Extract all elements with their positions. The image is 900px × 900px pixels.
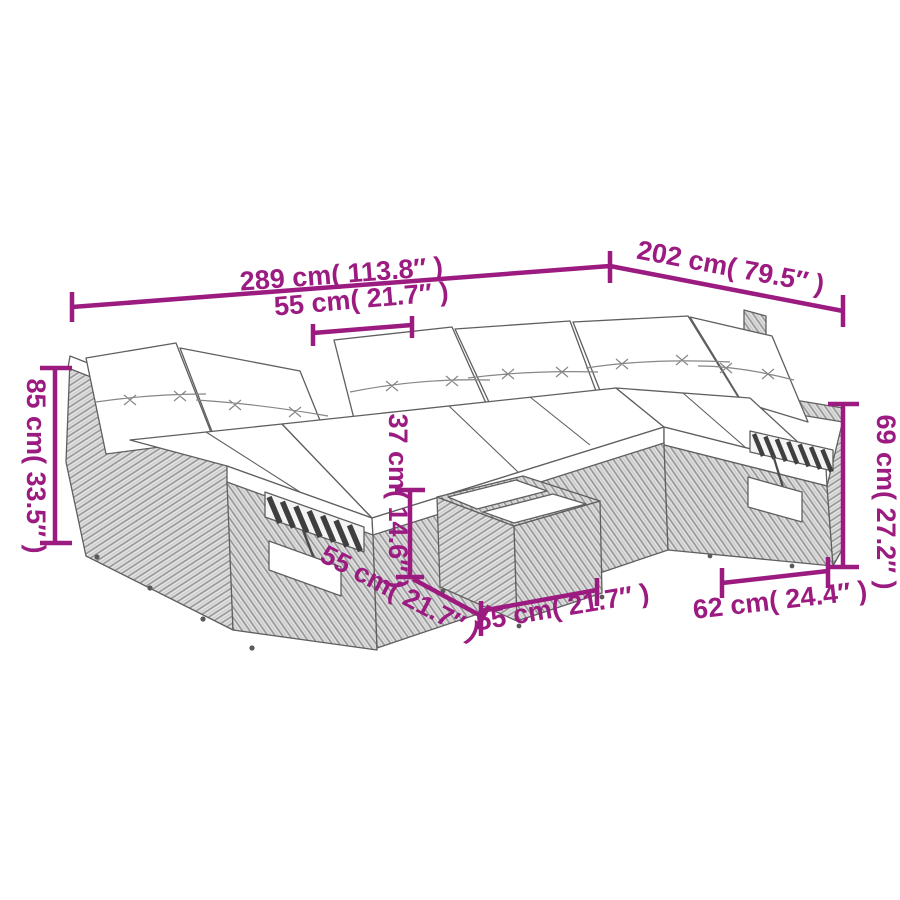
- foot-dot: [147, 585, 152, 590]
- foot-dot: [200, 616, 205, 621]
- foot-dot: [790, 564, 795, 569]
- foot-dot: [249, 645, 254, 650]
- dim-overall-height: 85 cm( 33.5″ ): [21, 368, 72, 554]
- dim-label-table-height: 37 cm( 14.6″ ): [383, 413, 413, 588]
- dim-label-overall-height: 85 cm( 33.5″ ): [21, 378, 51, 553]
- diagram-stage: 289 cm( 113.8″ ) 202 cm( 79.5″ ) 55 cm( …: [0, 0, 900, 900]
- foot-dot: [94, 554, 99, 559]
- dimension-diagram: 289 cm( 113.8″ ) 202 cm( 79.5″ ) 55 cm( …: [0, 0, 900, 900]
- dim-label-back-height: 69 cm( 27.2″ ): [871, 414, 900, 589]
- dim-overall-depth: 202 cm( 79.5″ ): [610, 235, 843, 327]
- dim-label-base-depth: 62 cm( 24.4″ ): [691, 575, 868, 625]
- foot-dot: [708, 554, 713, 559]
